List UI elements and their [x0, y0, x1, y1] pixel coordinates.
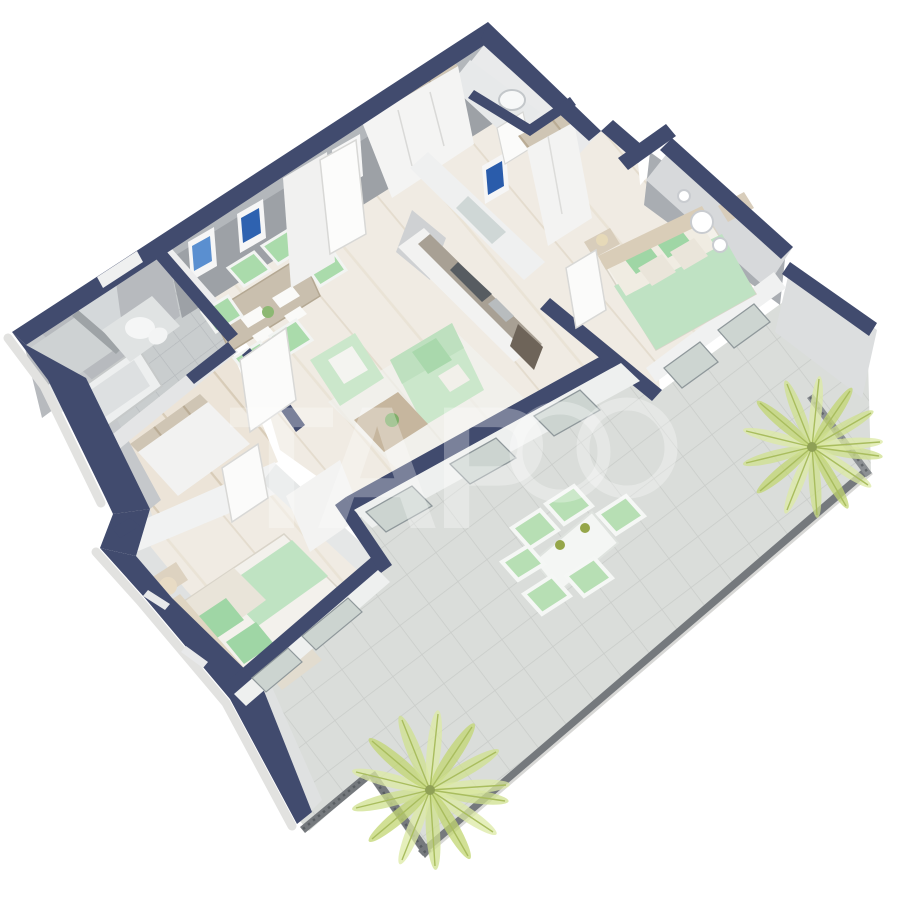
- svg-text:TAP: TAP: [228, 371, 543, 566]
